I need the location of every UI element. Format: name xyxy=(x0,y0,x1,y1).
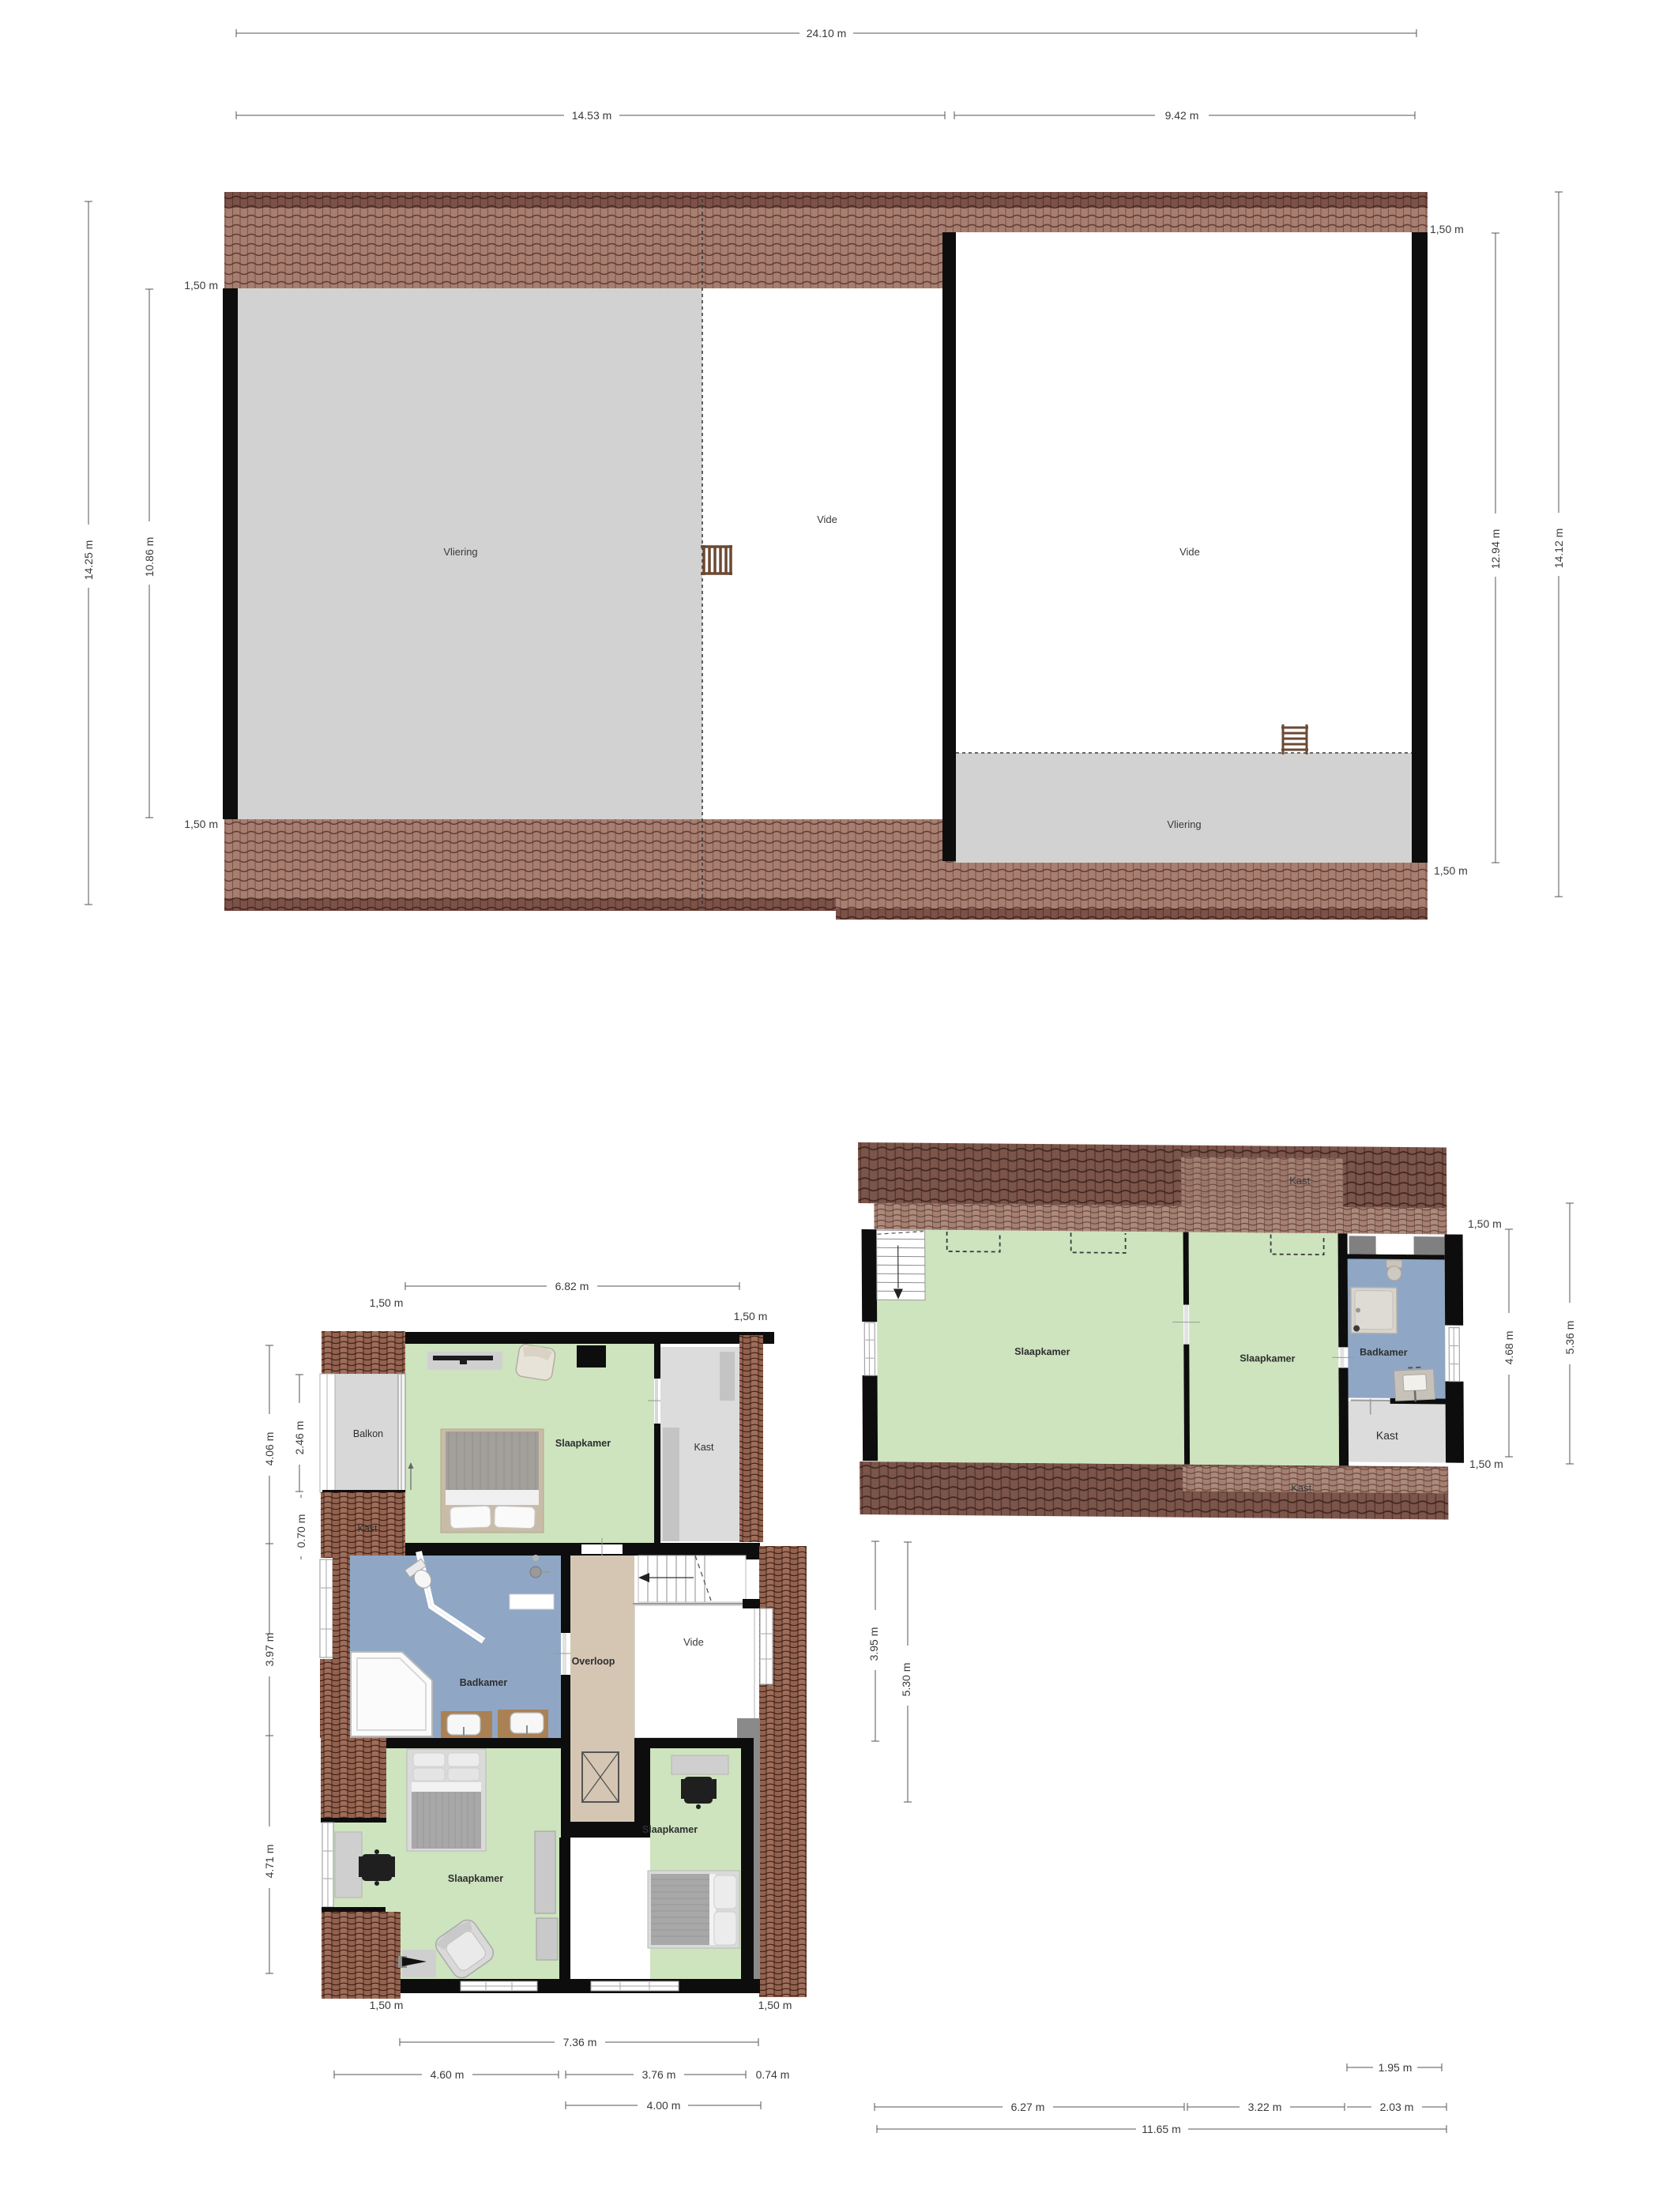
svg-text:4.68 m: 4.68 m xyxy=(1503,1331,1515,1365)
svg-text:14.53 m: 14.53 m xyxy=(572,109,612,122)
svg-text:1,50 m: 1,50 m xyxy=(370,1999,404,2011)
svg-text:Badkamer: Badkamer xyxy=(1360,1347,1408,1359)
svg-text:3.97 m: 3.97 m xyxy=(263,1633,276,1667)
svg-text:4.06 m: 4.06 m xyxy=(263,1432,276,1466)
svg-text:3.95 m: 3.95 m xyxy=(867,1627,880,1661)
svg-text:2.46 m: 2.46 m xyxy=(293,1421,306,1455)
svg-text:9.42 m: 9.42 m xyxy=(1165,109,1199,122)
svg-text:1,50 m: 1,50 m xyxy=(1469,1458,1503,1470)
svg-text:1.95 m: 1.95 m xyxy=(1379,2061,1413,2074)
svg-text:Vliering: Vliering xyxy=(443,546,477,558)
svg-text:7.36 m: 7.36 m xyxy=(563,2036,597,2048)
svg-text:6.82 m: 6.82 m xyxy=(555,1280,589,1292)
svg-text:0.70 m: 0.70 m xyxy=(295,1514,307,1548)
svg-text:1,50 m: 1,50 m xyxy=(370,1296,404,1309)
svg-text:Balkon: Balkon xyxy=(353,1428,383,1439)
svg-text:Slaapkamer: Slaapkamer xyxy=(1240,1352,1295,1364)
svg-text:14.12 m: 14.12 m xyxy=(1552,529,1565,569)
svg-text:3.22 m: 3.22 m xyxy=(1248,2101,1282,2113)
svg-text:Kast: Kast xyxy=(1291,1482,1311,1494)
svg-text:14.25 m: 14.25 m xyxy=(82,540,95,581)
svg-text:Kast: Kast xyxy=(1376,1429,1398,1442)
svg-text:12.94 m: 12.94 m xyxy=(1489,529,1502,570)
svg-text:2.03 m: 2.03 m xyxy=(1380,2101,1414,2113)
svg-text:5.30 m: 5.30 m xyxy=(900,1663,912,1697)
svg-text:Badkamer: Badkamer xyxy=(460,1677,508,1688)
svg-text:1,50 m: 1,50 m xyxy=(1468,1217,1502,1230)
svg-text:Kast: Kast xyxy=(1289,1175,1310,1187)
svg-text:6.27 m: 6.27 m xyxy=(1011,2101,1045,2113)
svg-text:4.71 m: 4.71 m xyxy=(263,1845,276,1879)
svg-text:Kast: Kast xyxy=(357,1523,378,1534)
svg-text:4.60 m: 4.60 m xyxy=(431,2068,465,2081)
svg-text:Overloop: Overloop xyxy=(572,1656,615,1667)
svg-text:0.74 m: 0.74 m xyxy=(756,2068,790,2081)
svg-text:4.00 m: 4.00 m xyxy=(647,2099,681,2112)
svg-text:Slaapkamer: Slaapkamer xyxy=(555,1438,611,1449)
svg-text:1,50 m: 1,50 m xyxy=(758,1999,792,2011)
svg-text:1,50 m: 1,50 m xyxy=(184,818,218,830)
svg-text:Slaapkamer: Slaapkamer xyxy=(448,1873,503,1884)
svg-text:1,50 m: 1,50 m xyxy=(1434,864,1468,877)
svg-text:24.10 m: 24.10 m xyxy=(807,27,847,39)
svg-text:Vide: Vide xyxy=(683,1636,704,1648)
svg-text:Vide: Vide xyxy=(817,513,837,525)
svg-text:3.76 m: 3.76 m xyxy=(642,2068,676,2081)
svg-text:Vliering: Vliering xyxy=(1167,818,1201,830)
svg-text:1,50 m: 1,50 m xyxy=(1430,223,1464,235)
svg-text:1,50 m: 1,50 m xyxy=(184,279,218,292)
svg-text:Slaapkamer: Slaapkamer xyxy=(1014,1346,1070,1358)
svg-text:Kast: Kast xyxy=(694,1442,714,1453)
svg-text:10.86 m: 10.86 m xyxy=(143,537,156,577)
svg-text:5.36 m: 5.36 m xyxy=(1563,1321,1576,1355)
svg-text:Slaapkamer: Slaapkamer xyxy=(642,1824,698,1835)
svg-text:11.65 m: 11.65 m xyxy=(1142,2123,1181,2135)
svg-text:1,50 m: 1,50 m xyxy=(734,1310,768,1322)
svg-text:Vide: Vide xyxy=(1179,546,1200,558)
